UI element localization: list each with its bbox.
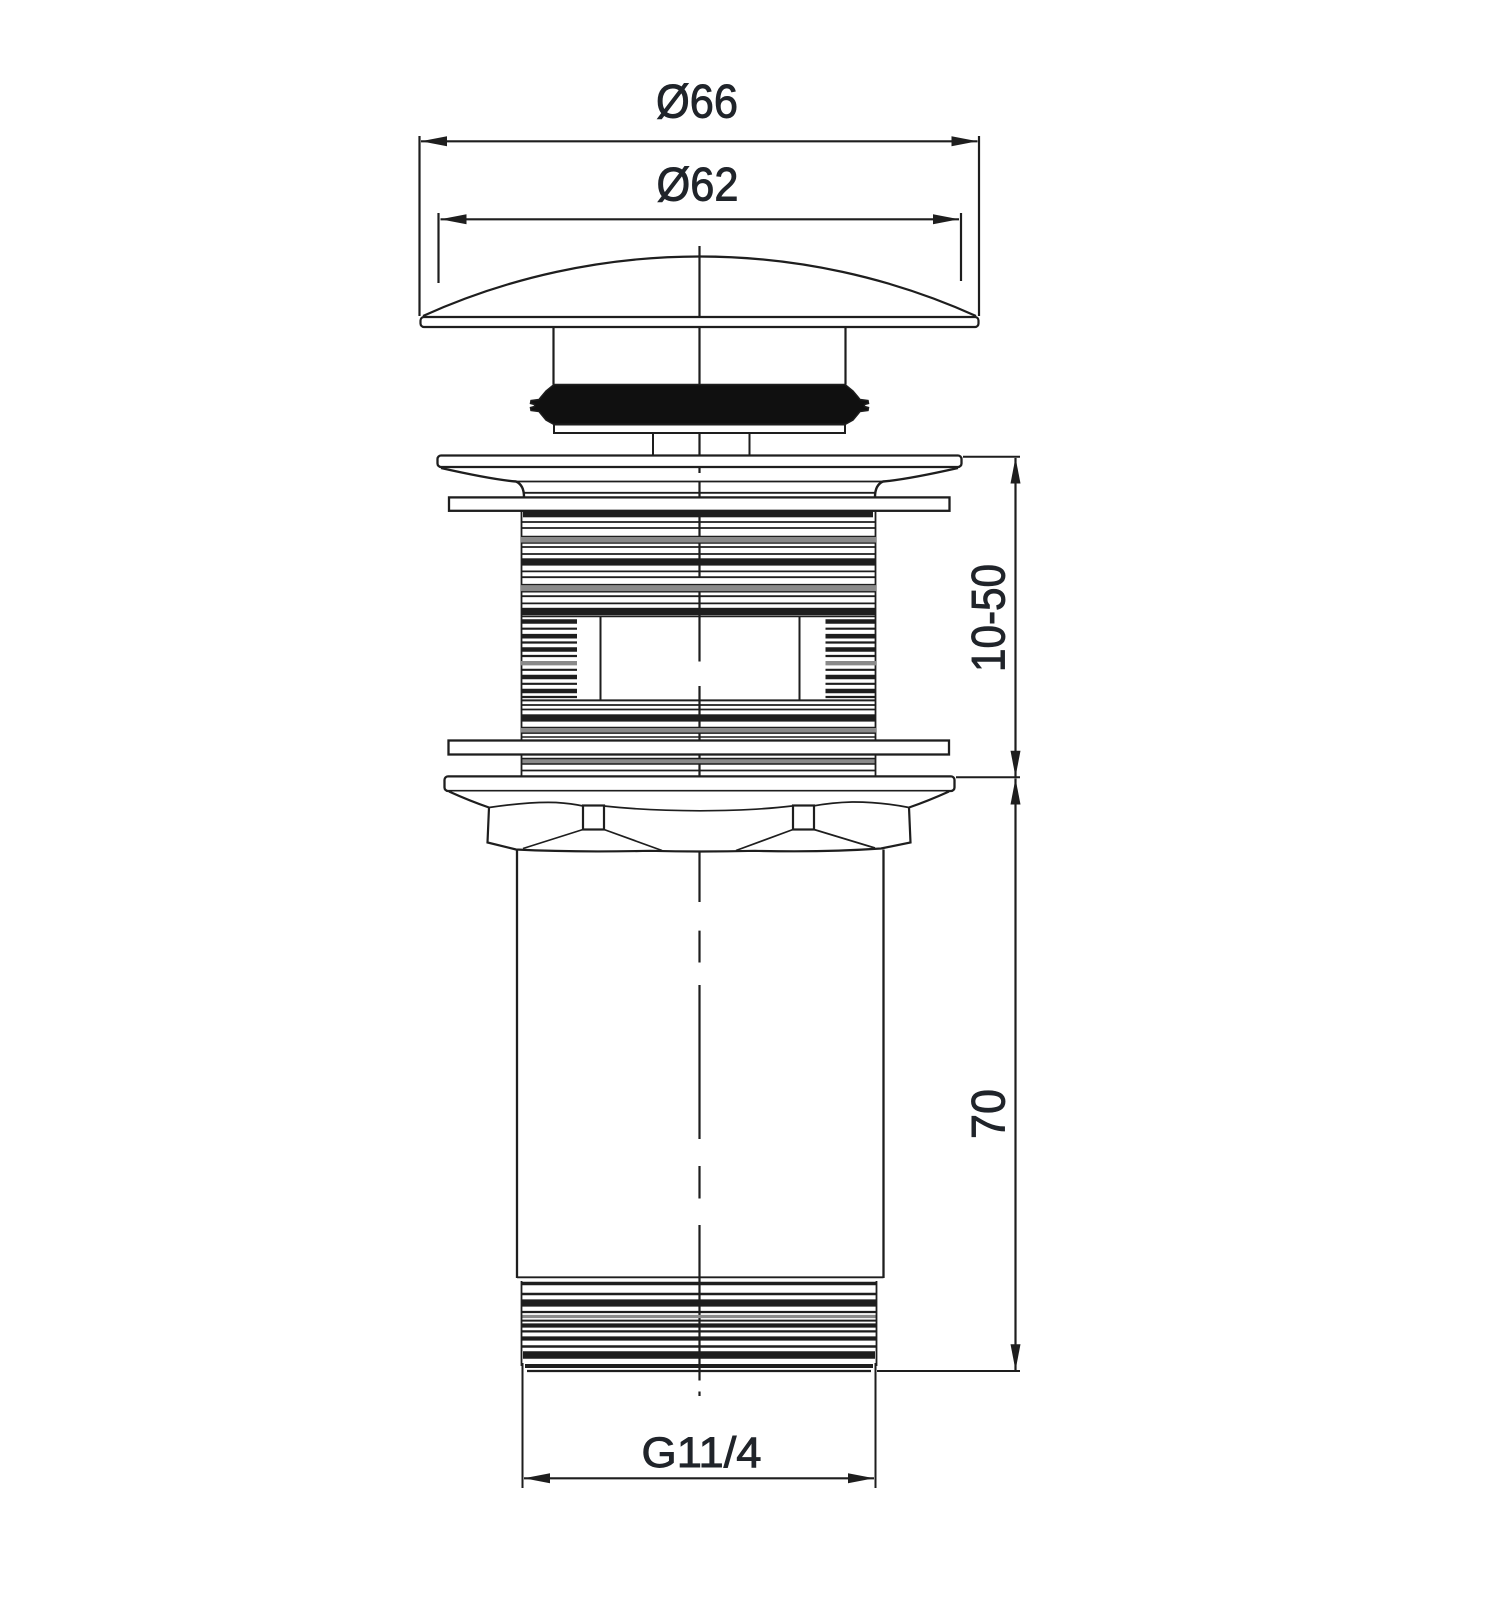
svg-text:70: 70	[962, 1089, 1015, 1139]
svg-text:10-50: 10-50	[962, 564, 1015, 672]
svg-text:Ø62: Ø62	[657, 158, 739, 211]
svg-text:Ø66: Ø66	[656, 75, 738, 128]
svg-text:G11/4: G11/4	[642, 1429, 762, 1477]
